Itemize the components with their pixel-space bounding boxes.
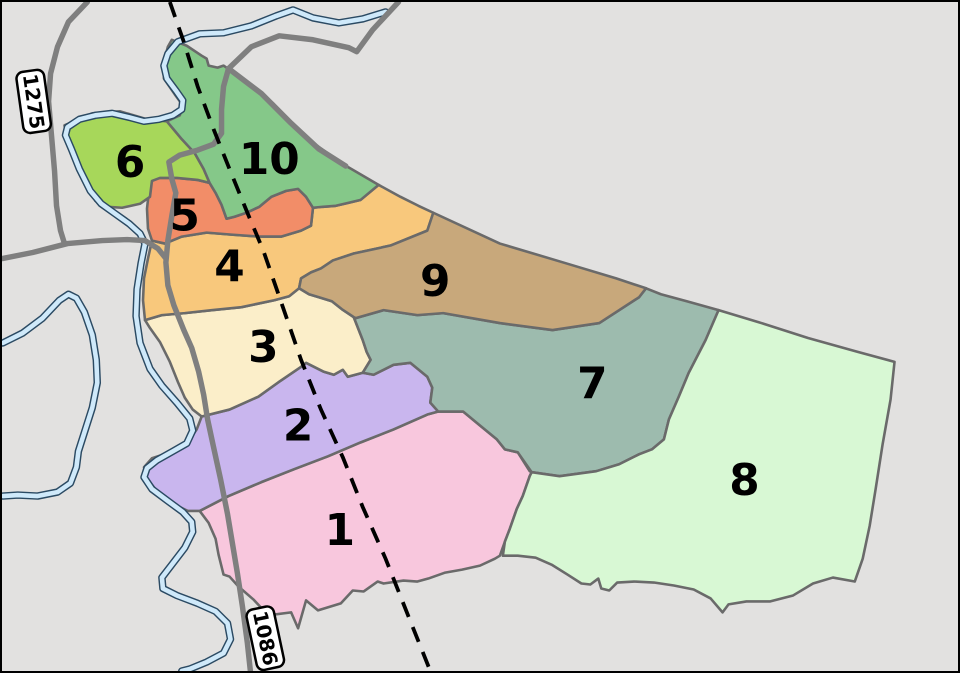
region-2-label: 2 xyxy=(283,400,313,451)
district-map: 1275 1086 1 2 3 4 5 6 7 8 9 10 xyxy=(0,0,960,673)
region-6-label: 6 xyxy=(115,137,145,188)
region-1-label: 1 xyxy=(325,505,355,556)
region-3-label: 3 xyxy=(248,322,278,373)
region-10-label: 10 xyxy=(239,134,300,185)
region-7-label: 7 xyxy=(577,359,607,410)
region-4-label: 4 xyxy=(214,241,244,292)
region-8-label: 8 xyxy=(729,455,759,506)
region-9-label: 9 xyxy=(420,256,450,307)
region-5-label: 5 xyxy=(170,191,200,242)
